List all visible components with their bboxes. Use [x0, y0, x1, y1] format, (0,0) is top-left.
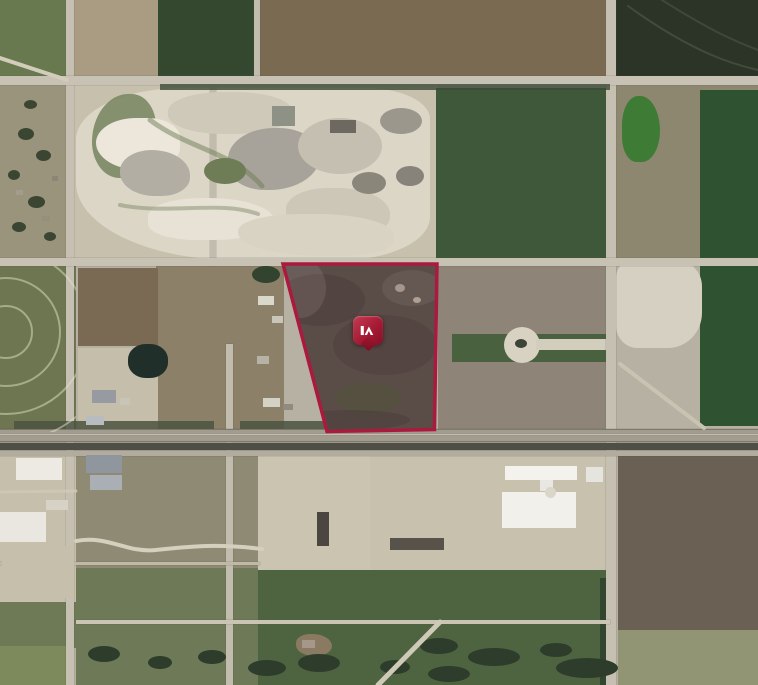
tree-clump-property-nw — [252, 266, 280, 283]
patch-bright-green-east — [622, 96, 660, 162]
field-crop-rows-southwest — [0, 646, 70, 685]
rural-tree-4 — [28, 196, 45, 208]
brush-highway-west — [14, 421, 214, 429]
tree-south-8 — [540, 643, 572, 657]
rural-house-3 — [42, 216, 50, 221]
truckyard-row-2 — [374, 484, 502, 502]
rural-tree-3 — [8, 170, 20, 180]
westlot-building-2 — [86, 416, 104, 425]
rural-tree-5 — [12, 222, 26, 232]
tree-south-11 — [380, 660, 410, 674]
truckyard-row-4 — [376, 556, 438, 564]
tree-south-5 — [298, 654, 340, 672]
path-canal-south — [76, 620, 610, 624]
tree-south-3 — [198, 650, 226, 664]
farm-structure-5 — [283, 404, 293, 410]
road-vertical-east — [606, 0, 616, 685]
pit-equip-dark — [396, 166, 424, 186]
trailer-column-east — [592, 486, 603, 554]
sw-warehouse-bays — [0, 512, 46, 542]
field-green-crops-north — [436, 88, 608, 262]
railroad — [0, 443, 758, 450]
road-diagonal-east — [620, 364, 704, 428]
highway-centerline — [0, 434, 758, 435]
road-vertical-mid-south — [226, 344, 233, 685]
rural-tree-1 — [18, 128, 34, 140]
pit-patch-gray-3 — [380, 108, 422, 134]
westlot-building-1 — [92, 390, 116, 403]
property-trail-1 — [398, 278, 430, 428]
westlot-building-3 — [120, 398, 130, 405]
lane-tan-east — [536, 339, 608, 350]
tree-south-6 — [420, 638, 458, 654]
sw-warehouse-1 — [16, 458, 62, 480]
rural-tree-7 — [24, 100, 37, 109]
satellite-map — [0, 0, 758, 685]
truckyard-dark-cluster — [390, 538, 444, 550]
rural-house-1 — [32, 142, 40, 148]
field-rows-southeast — [618, 630, 758, 685]
warehouse-long-roof — [505, 466, 577, 480]
pond-west — [128, 344, 168, 378]
pit-truck-row — [330, 120, 356, 133]
farm-structure-2 — [272, 316, 283, 323]
tree-south-2 — [148, 656, 172, 669]
tree-south-7 — [468, 648, 520, 666]
rural-tree-6 — [44, 232, 56, 241]
grass-southwest — [0, 602, 76, 648]
pit-pond-green — [204, 158, 246, 184]
field-top-mottled-brown — [258, 0, 610, 78]
pad-dark-spot — [515, 339, 527, 348]
farmstead-south-roof — [302, 640, 315, 648]
warehouse-small — [586, 467, 603, 482]
pit-lattice-grid — [272, 106, 295, 126]
farm-structure-1 — [258, 296, 274, 305]
pit-mound-dark — [352, 172, 386, 194]
patch-white-east — [616, 260, 702, 348]
truckyard-row-1 — [374, 462, 502, 478]
sw-trailer-rows — [2, 546, 74, 598]
road-vertical-top — [254, 0, 260, 78]
midlot-dark-strip — [317, 512, 329, 546]
field-brown-southeast — [618, 454, 758, 630]
tree-south-10 — [428, 666, 470, 682]
truckyard-row-5 — [446, 556, 518, 564]
rural-house-2 — [16, 190, 23, 195]
rural-tree-2 — [36, 150, 51, 161]
farm-structure-4 — [263, 398, 280, 407]
tree-south-4 — [248, 660, 286, 676]
truckyard-row-3 — [374, 504, 502, 518]
midlot-container-rows — [262, 460, 354, 508]
field-top-left-green — [0, 0, 70, 78]
tree-south-1 — [88, 646, 120, 662]
field-pivot-circle — [0, 266, 76, 432]
rural-house-4 — [52, 176, 58, 181]
brush-highway-mid — [240, 421, 325, 429]
field-top-bare — [70, 0, 162, 78]
field-mid-scrub — [156, 266, 284, 432]
sw-building-gray-1 — [86, 455, 122, 473]
farm-structure-3 — [257, 356, 269, 364]
sw-shed — [46, 500, 68, 510]
tree-south-9 — [556, 658, 618, 678]
treeline-north-road — [160, 84, 610, 90]
property-marker[interactable] — [353, 316, 383, 349]
field-top-crop-rows — [158, 0, 258, 78]
warehouse-main — [502, 492, 576, 528]
patch-brown-west — [78, 268, 158, 346]
warehouse-tank — [545, 487, 556, 498]
field-top-right-dark — [610, 0, 758, 78]
sw-building-gray-2 — [90, 475, 122, 490]
